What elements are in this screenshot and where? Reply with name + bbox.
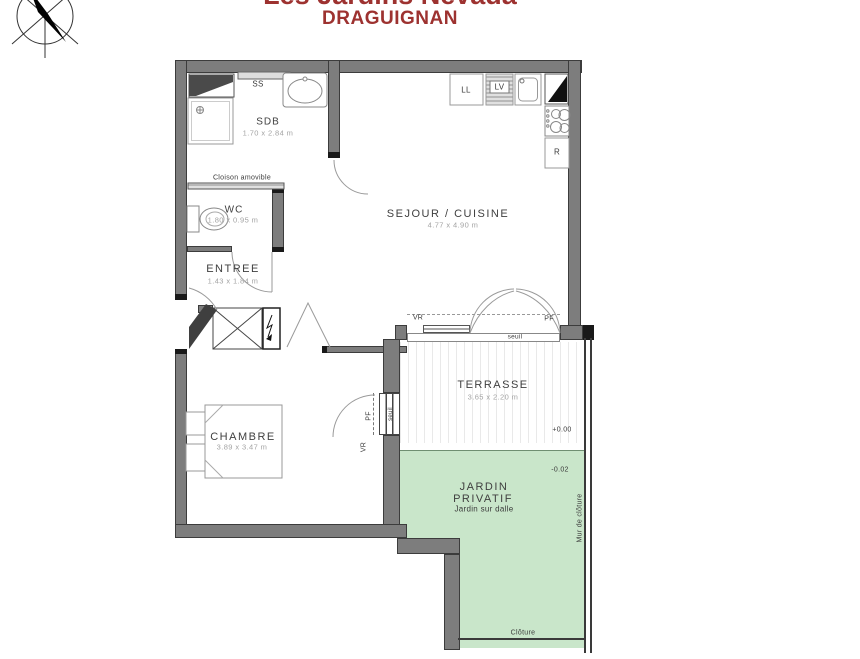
chambre-dims: 3.89 x 3.47 m <box>217 443 268 452</box>
sejour-pf-tag: PF <box>544 316 554 323</box>
garden-level: -0.02 <box>551 467 568 474</box>
compass-icon <box>12 0 78 58</box>
wall-left-upper <box>175 60 187 300</box>
corner-shaft-sdb-icon <box>189 74 234 97</box>
enclosure-wall-line-inner <box>590 338 592 653</box>
sejour-seuil-tag: seuil <box>508 334 523 341</box>
wall-cap <box>175 349 187 354</box>
chambre-label: CHAMBRE <box>210 431 276 443</box>
wall-chambre-right-upper <box>383 339 400 393</box>
fence-tag: Clôture <box>511 630 536 637</box>
fence-bottom-line <box>458 638 586 640</box>
wall-garden-west <box>444 554 460 650</box>
wall-cap <box>272 188 284 193</box>
cooktop-icon <box>545 106 570 136</box>
wall-left-lower <box>175 349 187 538</box>
sink-icon <box>515 74 541 105</box>
towel-dryer-icon <box>238 72 290 79</box>
wall-chambre-bottom <box>175 524 407 538</box>
washbasin-icon <box>283 73 327 107</box>
entree-dims: 1.43 x 1.84 m <box>208 277 259 286</box>
corner-shaft-kitchen-icon <box>545 74 568 104</box>
wall-garden-southwest <box>397 538 460 554</box>
sejour-threshold <box>407 333 560 342</box>
jardin-label-line2: PRIVATIF <box>453 493 513 505</box>
sejour-label: SEJOUR / CUISINE <box>387 208 509 220</box>
entree-label: ENTREE <box>206 263 260 275</box>
pillar-terrace-left <box>395 325 407 340</box>
wc-label: WC <box>225 205 244 216</box>
chambre-vr-tag: VR <box>361 442 368 452</box>
fridge-tag: R <box>554 148 560 157</box>
wall-cap <box>272 247 284 252</box>
sdb-label: SDB <box>256 117 280 128</box>
wall-cap <box>175 294 187 300</box>
wall-wc-bottom <box>187 246 232 252</box>
sejour-vr-tag: VR <box>413 315 423 322</box>
chambre-door-leaf-dashed <box>373 393 374 435</box>
outside-area <box>397 554 444 659</box>
jardin-label-line1: JARDIN <box>460 481 509 493</box>
partition-hatch <box>188 183 284 189</box>
sejour-dims: 4.77 x 4.90 m <box>428 221 479 230</box>
sejour-opening-dashed-line <box>407 314 560 315</box>
terrace-level: +0.00 <box>552 427 571 434</box>
wall-closet-stub <box>198 305 213 313</box>
chambre-seuil-tag: seuil <box>388 407 394 421</box>
sdb-dims: 1.70 x 2.84 m <box>243 129 294 138</box>
dishwasher-tag: LV <box>495 83 505 92</box>
closet-icon <box>213 308 262 349</box>
wall-sejour-right <box>568 60 581 338</box>
towel-dryer-tag: SS <box>252 80 263 89</box>
wall-chambre-right-lower <box>383 435 400 538</box>
wc-dims: 1.80 x 0.95 m <box>208 216 259 225</box>
washer-tag: LL <box>461 86 471 95</box>
partition-tag: Cloison amovible <box>213 175 271 182</box>
enclosure-wall-tag: Mur de clôture <box>577 494 584 543</box>
wall-cap <box>328 152 340 158</box>
wall-wc-right <box>272 188 284 252</box>
sejour-window-vr <box>423 325 470 333</box>
electrical-panel-icon <box>263 308 280 349</box>
jardin-subtitle: Jardin sur dalle <box>454 505 513 514</box>
floor-plan-page: Les Jardins Nevada DRAGUIGNAN <box>0 0 860 659</box>
city-title: DRAGUIGNAN <box>180 8 600 30</box>
wall-sdb-right <box>328 60 340 157</box>
pillar-terrace-right <box>560 325 583 340</box>
wall-top <box>180 60 582 73</box>
terrasse-dims: 3.65 x 2.20 m <box>468 393 519 402</box>
wall-cap <box>322 346 327 353</box>
chambre-pf-tag: PF <box>366 411 373 421</box>
terrasse-label: TERRASSE <box>457 379 528 391</box>
enclosure-wall-line-outer <box>584 338 586 653</box>
shower-icon <box>188 98 233 144</box>
